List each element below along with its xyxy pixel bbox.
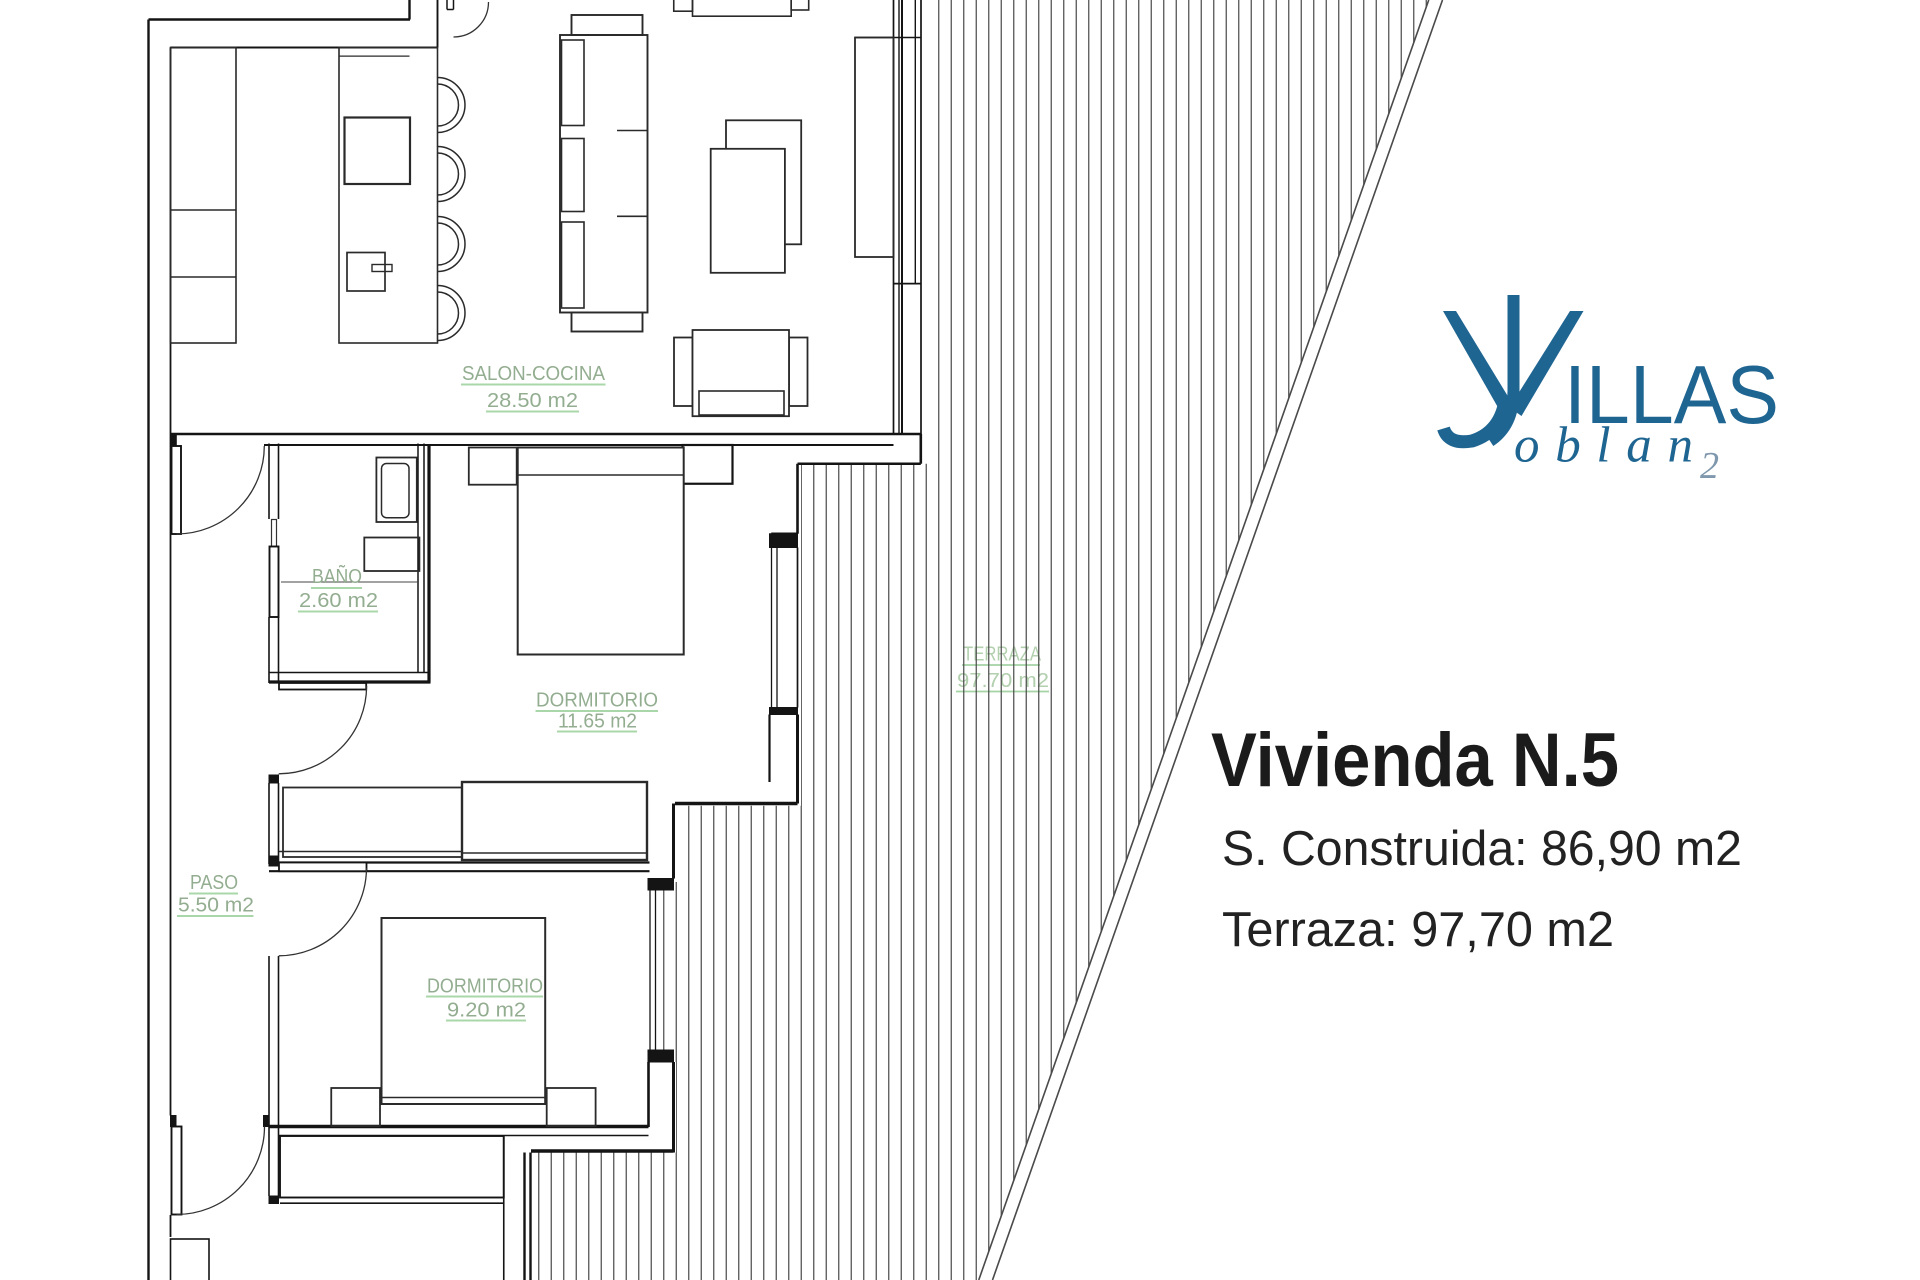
svg-text:Vivienda N.5: Vivienda N.5 bbox=[1211, 718, 1619, 803]
svg-text:9.20 m2: 9.20 m2 bbox=[447, 1000, 526, 1022]
svg-text:2: 2 bbox=[1700, 445, 1719, 487]
svg-text:S. Construida: 86,90 m2: S. Construida: 86,90 m2 bbox=[1222, 822, 1742, 876]
svg-text:11.65 m2: 11.65 m2 bbox=[558, 711, 637, 733]
svg-text:PASO: PASO bbox=[190, 872, 238, 894]
svg-text:2.60 m2: 2.60 m2 bbox=[299, 590, 378, 612]
svg-text:TERRAZA: TERRAZA bbox=[963, 644, 1042, 666]
svg-text:DORMITORIO: DORMITORIO bbox=[536, 690, 658, 712]
svg-text:DORMITORIO: DORMITORIO bbox=[427, 976, 543, 998]
svg-text:28.50 m2: 28.50 m2 bbox=[487, 390, 578, 412]
svg-text:Terraza: 97,70 m2: Terraza: 97,70 m2 bbox=[1222, 903, 1614, 957]
svg-text:97.70 m2: 97.70 m2 bbox=[957, 670, 1049, 692]
svg-text:5.50 m2: 5.50 m2 bbox=[178, 895, 254, 917]
svg-text:SALON-COCINA: SALON-COCINA bbox=[462, 363, 606, 385]
svg-text:BAÑO: BAÑO bbox=[312, 564, 362, 588]
